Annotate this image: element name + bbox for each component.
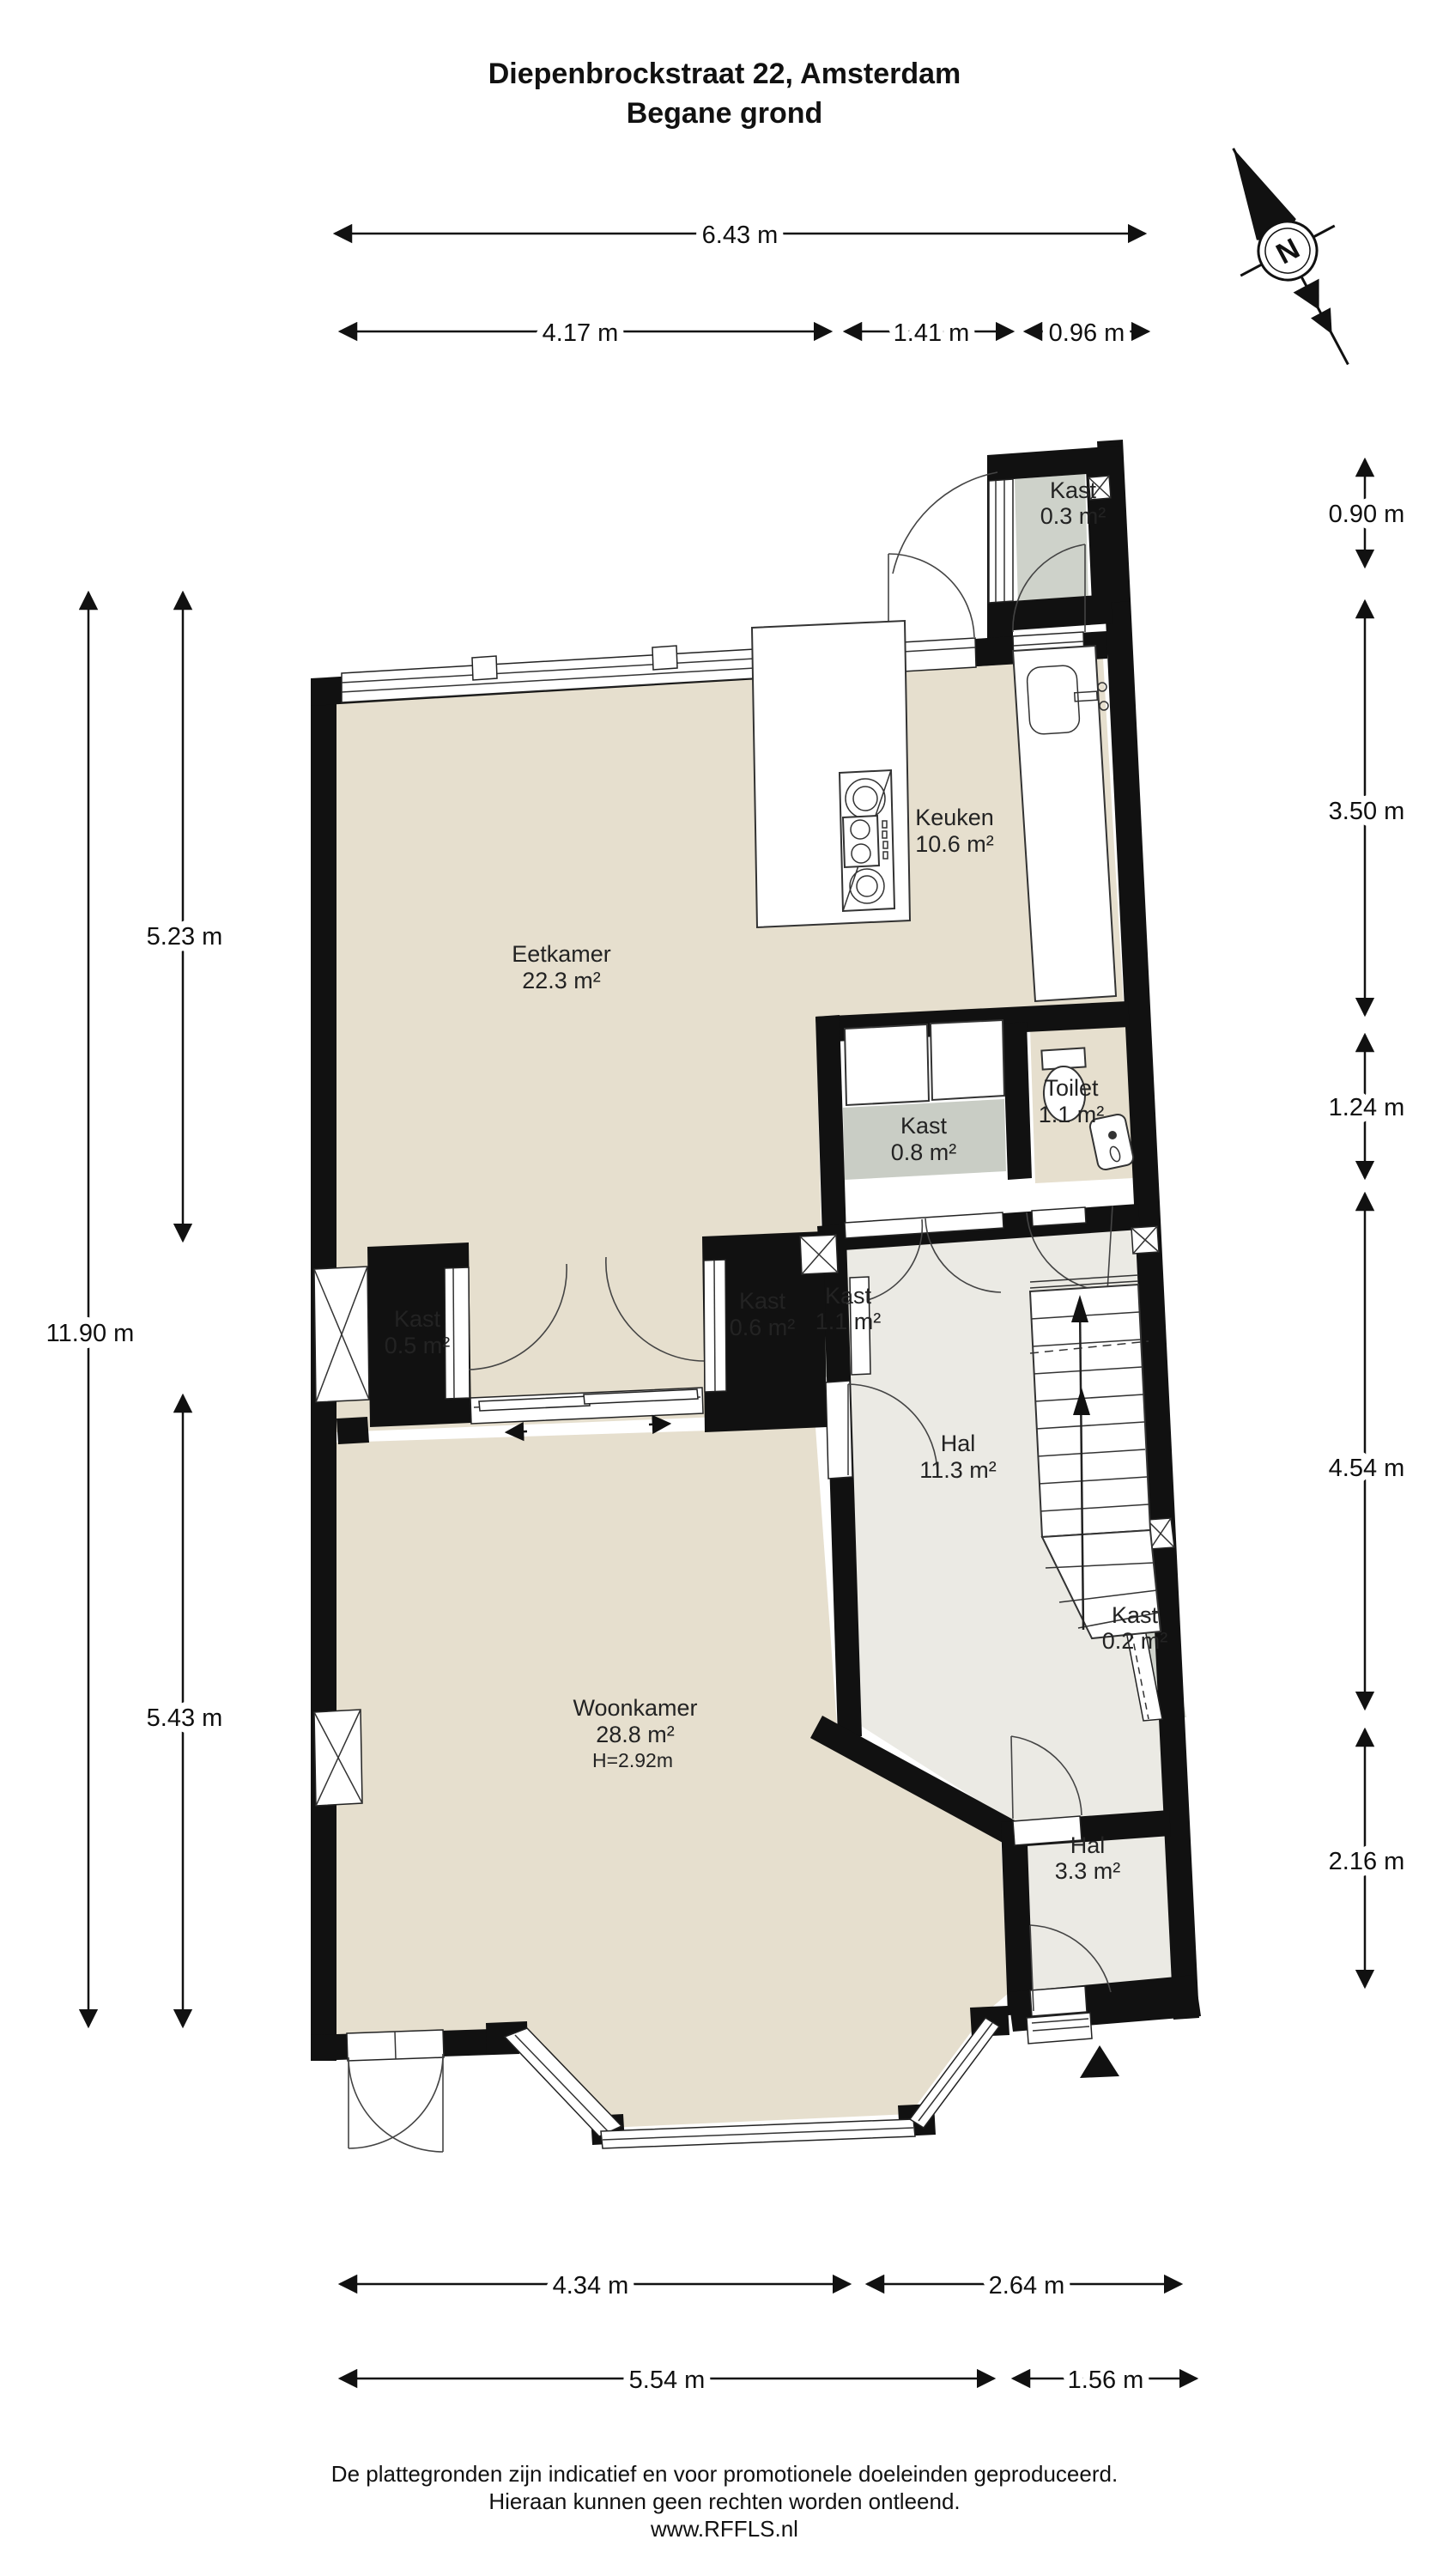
sliding-door-arrow-left [506, 1431, 527, 1432]
dim-bottom-1-label: 4.34 m [553, 2272, 629, 2300]
dim-right-4-label: 4.54 m [1329, 1455, 1405, 1482]
hob-icon [843, 816, 879, 867]
french-door-mullion [395, 2032, 396, 2059]
footer-website: www.RFFLS.nl [650, 2516, 798, 2542]
dim-top-1-label: 4.17 m [543, 319, 619, 347]
label-eetkamer-area: 22.3 m² [522, 968, 601, 993]
dim-left-total-label: 11.90 m [46, 1320, 135, 1347]
label-hal33-area: 3.3 m² [1055, 1858, 1121, 1884]
label-toilet-area: 1.1 m² [1039, 1102, 1105, 1127]
label-eetkamer-name: Eetkamer [512, 941, 611, 967]
entrance-marker-icon [1080, 2045, 1119, 2078]
floorplan-page: Diepenbrockstraat 22, Amsterdam Begane g… [0, 0, 1449, 2576]
label-kast03-name: Kast [1050, 477, 1097, 503]
dim-left-2-label: 5.43 m [147, 1704, 223, 1732]
floorplan-drawing: Diepenbrockstraat 22, Amsterdam Begane g… [0, 0, 1449, 2576]
dim-right-3-label: 1.24 m [1329, 1094, 1405, 1121]
label-kast08-area: 0.8 m² [891, 1139, 957, 1165]
label-kast02-area: 0.2 m² [1102, 1628, 1168, 1654]
appliance-box [931, 1020, 1004, 1100]
label-toilet-name: Toilet [1044, 1075, 1099, 1101]
label-kast03-area: 0.3 m² [1040, 503, 1106, 529]
kast03-door-opening [989, 479, 1013, 603]
dim-right-5-label: 2.16 m [1329, 1848, 1405, 1875]
footer-disclaimer: De plattegronden zijn indicatief en voor… [331, 2461, 1118, 2542]
label-keuken-name: Keuken [915, 805, 994, 830]
appliance-box [845, 1024, 929, 1105]
label-keuken-area: 10.6 m² [915, 831, 994, 857]
french-door-arc-left [349, 2054, 443, 2148]
page-title-line1: Diepenbrockstraat 22, Amsterdam [488, 58, 961, 90]
label-hal-area: 11.3 m² [919, 1457, 997, 1483]
row-left-stub [336, 1417, 369, 1444]
stair-flight [1030, 1285, 1150, 1537]
label-hal33-name: Hal [1070, 1832, 1106, 1858]
dim-top-3-label: 0.96 m [1049, 319, 1125, 347]
label-kast05-area: 0.5 m² [385, 1333, 451, 1358]
dim-bottom-3-label: 5.54 m [629, 2366, 706, 2394]
compass-fletch-2 [1311, 307, 1342, 339]
kast06-door-panel [714, 1261, 715, 1391]
kast08-toilet-divider [1003, 1022, 1032, 1180]
dim-bottom-2-label: 2.64 m [989, 2272, 1065, 2300]
window-mullion [472, 656, 497, 680]
label-woonkamer-height: H=2.92m [592, 1749, 673, 1771]
kast05-door-panel [453, 1268, 454, 1398]
label-kast06-name: Kast [739, 1288, 786, 1314]
dim-bottom-4-label: 1.56 m [1068, 2366, 1144, 2394]
sliding-door-arrow-right [649, 1424, 670, 1425]
label-kast11-area: 1.1 m² [815, 1309, 882, 1334]
dim-right-2-label: 3.50 m [1329, 798, 1405, 825]
dim-left-1-label: 5.23 m [147, 923, 223, 951]
toilet-door-opening [1032, 1207, 1086, 1226]
label-kast08-name: Kast [900, 1113, 948, 1139]
footer-line1: De plattegronden zijn indicatief en voor… [331, 2461, 1118, 2487]
dim-top-2-label: 1.41 m [894, 319, 970, 347]
label-kast02-name: Kast [1112, 1602, 1159, 1628]
label-woonkamer-area: 28.8 m² [596, 1722, 675, 1747]
label-kast11-name: Kast [825, 1283, 872, 1309]
footer-line2: Hieraan kunnen geen rechten worden ontle… [488, 2488, 960, 2514]
front-door-opening [1030, 1986, 1087, 2016]
basin-tap-icon [1108, 1131, 1117, 1139]
dim-right-1-label: 0.90 m [1329, 501, 1405, 528]
label-hal-name: Hal [941, 1431, 976, 1456]
window-mullion [652, 646, 677, 670]
north-compass-icon: N [1186, 124, 1395, 390]
label-kast06-area: 0.6 m² [730, 1315, 796, 1340]
dim-top-total-label: 6.43 m [702, 222, 779, 249]
label-kast05-name: Kast [394, 1306, 441, 1332]
kast03-door-arc [893, 472, 997, 574]
page-title-line2: Begane grond [627, 97, 823, 130]
label-woonkamer-name: Woonkamer [573, 1695, 697, 1721]
